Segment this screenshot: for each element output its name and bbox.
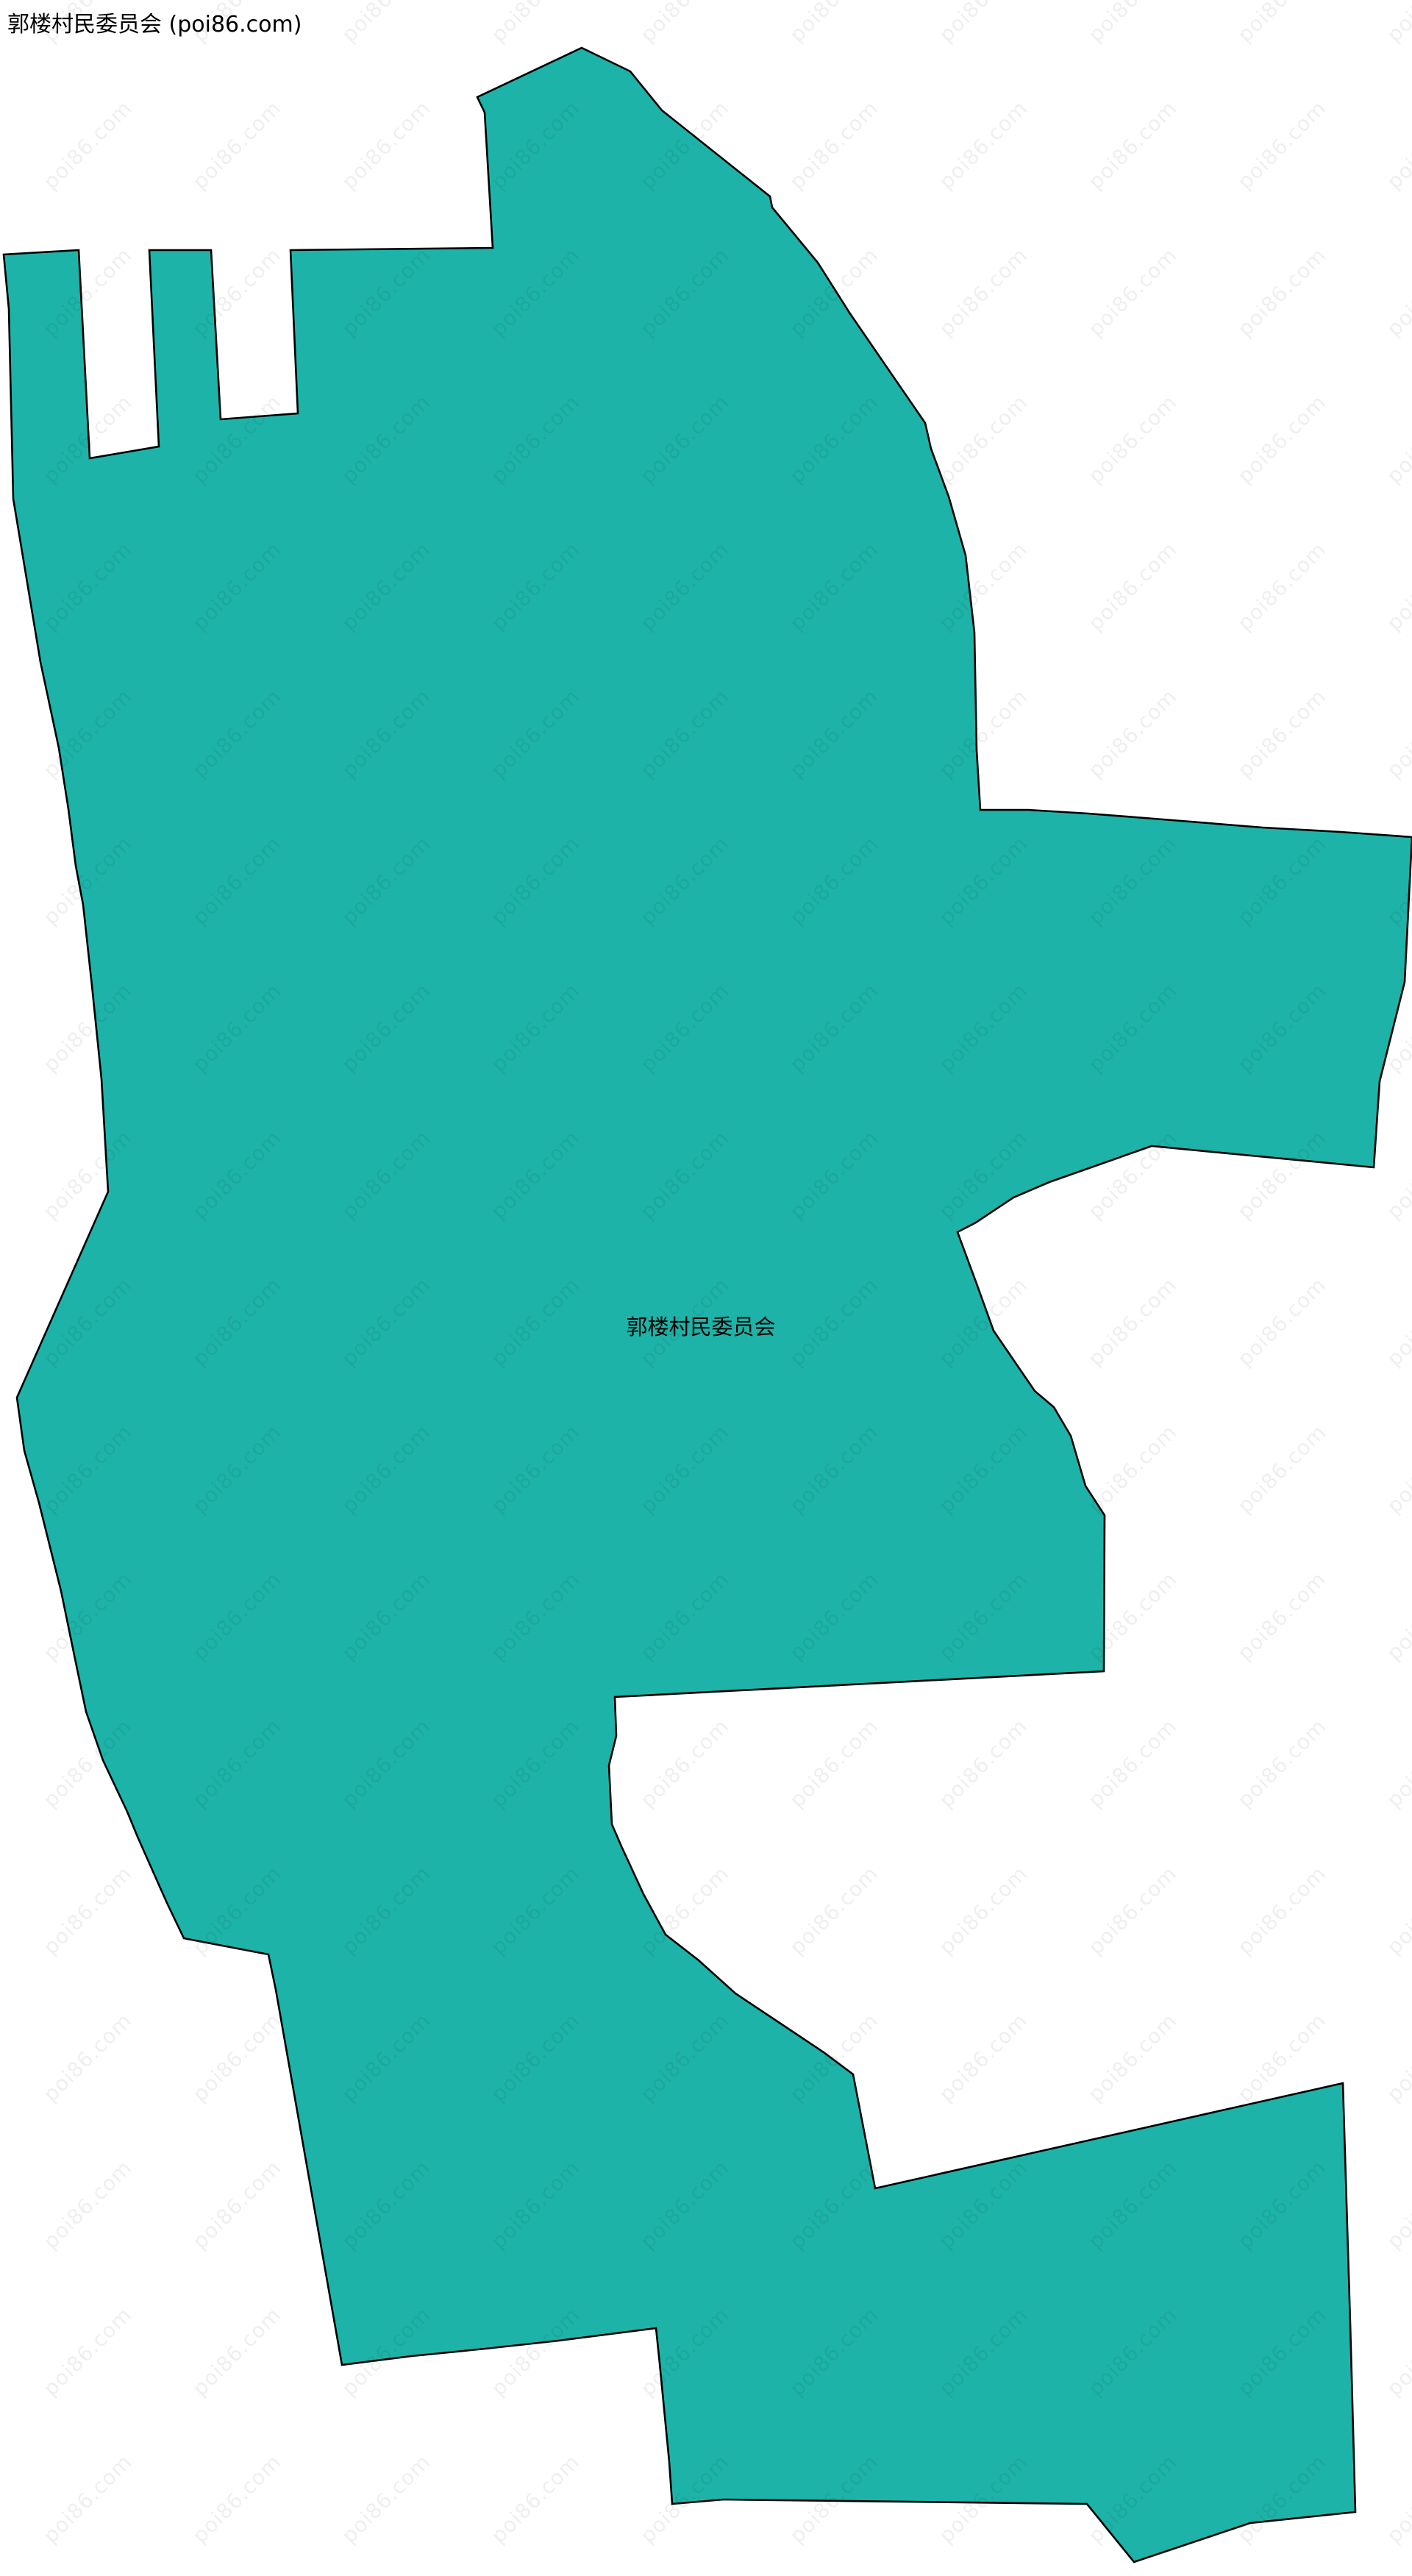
map-canvas <box>0 0 1412 2576</box>
page-title: 郭楼村民委员会 (poi86.com) <box>7 6 302 38</box>
village-boundary-polygon <box>4 48 1412 2562</box>
map-page: poi86.compoi86.compoi86.compoi86.compoi8… <box>0 0 1412 2576</box>
region-label: 郭楼村民委员会 <box>626 1310 775 1341</box>
